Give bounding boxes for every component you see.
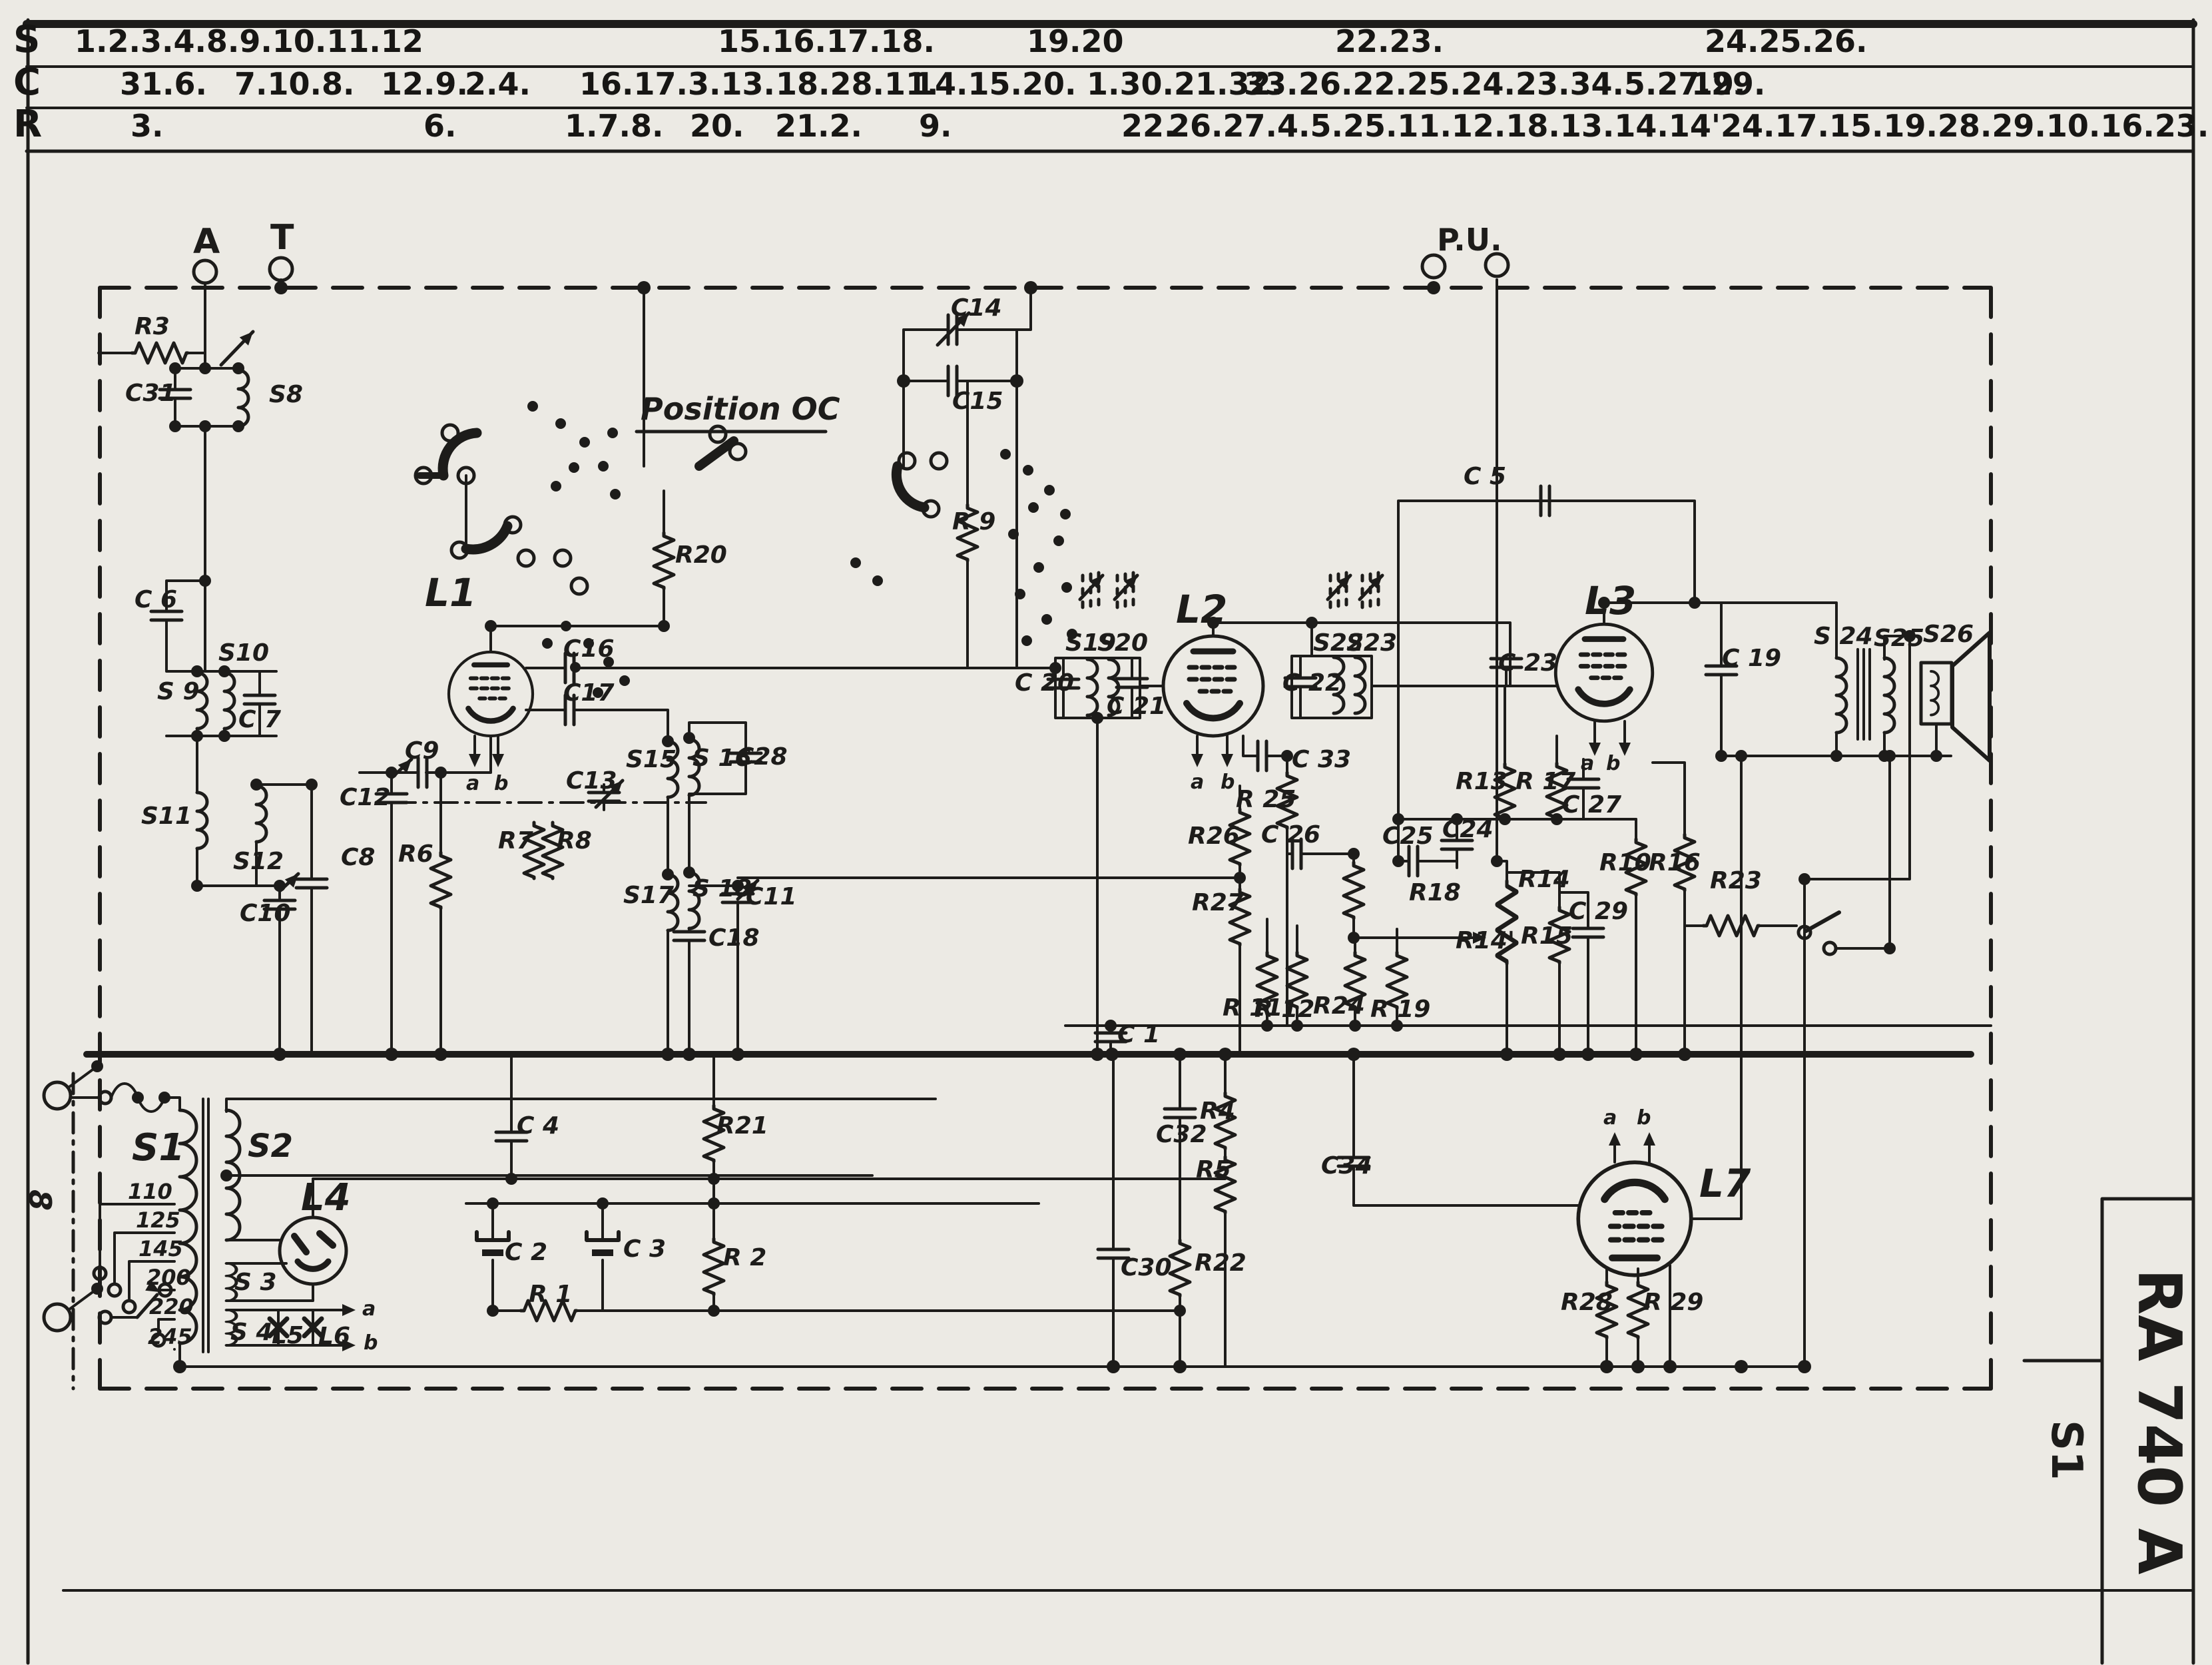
label-C12: C12 bbox=[340, 784, 391, 811]
label-pin-a1: a bbox=[466, 772, 479, 795]
label-C11: C11 bbox=[746, 883, 797, 910]
label-C6: C 6 bbox=[135, 586, 177, 613]
label-R20: R20 bbox=[675, 541, 727, 569]
label-S23: S23 bbox=[1346, 629, 1397, 657]
label-pin-b5: b bbox=[364, 1331, 378, 1355]
label-R23: R23 bbox=[1710, 867, 1762, 894]
header-row-S-group-4: 24.25.26. bbox=[1705, 23, 1867, 59]
schematic-sheet: S1.2.3.4.8.9.10.11.1215.16.17.18.19.2022… bbox=[0, 0, 2212, 1665]
label-L3: L3 bbox=[1585, 578, 1636, 623]
header-row-R-group-5: 9. bbox=[919, 108, 952, 144]
label-fuse-8: 8 bbox=[22, 1189, 58, 1211]
label-C8: C8 bbox=[341, 844, 375, 871]
header-row-letter-S: S bbox=[13, 18, 40, 61]
label-C32: C32 bbox=[1156, 1121, 1207, 1148]
header-row-S-group-0: 1.2.3.4.8.9.10.11.12 bbox=[75, 23, 423, 59]
label-pin-b1: b bbox=[494, 772, 508, 795]
header-row-C-group-6: 14.15. bbox=[914, 66, 1022, 102]
label-L5: L5 bbox=[272, 1322, 304, 1349]
label-S4: S 4 bbox=[230, 1319, 273, 1346]
header-row-letter-C: C bbox=[13, 61, 41, 104]
label-C2: C 2 bbox=[505, 1239, 547, 1266]
label-C16: C16 bbox=[563, 635, 615, 663]
label-S3: S 3 bbox=[234, 1269, 277, 1296]
label-pin-a5: a bbox=[362, 1297, 376, 1321]
header-row-R-group-7: 26.27.4.5.25.11.12.18.13.14.14'24.17.15.… bbox=[1169, 108, 2209, 144]
label-C29: C 29 bbox=[1569, 898, 1628, 925]
label-C15: C15 bbox=[952, 388, 1003, 415]
label-R6: R6 bbox=[398, 840, 433, 868]
label-S20: S20 bbox=[1097, 629, 1148, 657]
label-C20: C 20 bbox=[1015, 669, 1074, 697]
label-S2: S2 bbox=[248, 1128, 293, 1165]
label-R3: R3 bbox=[135, 313, 170, 340]
header-row-R-group-1: 6. bbox=[423, 108, 456, 144]
label-L4: L4 bbox=[301, 1176, 351, 1219]
label-C34: C34 bbox=[1321, 1152, 1372, 1179]
label-R2: R 2 bbox=[723, 1244, 766, 1271]
label-C24: C24 bbox=[1442, 816, 1494, 843]
label-R26: R26 bbox=[1188, 823, 1240, 850]
label-C1: C 1 bbox=[1117, 1021, 1160, 1048]
label-title-model: RA 740 A bbox=[2124, 1269, 2194, 1574]
label-C21: C 21 bbox=[1107, 693, 1166, 720]
label-S8: S8 bbox=[269, 381, 303, 408]
label-R10: R10 bbox=[1599, 849, 1651, 876]
label-terminal-pu: P.U. bbox=[1437, 222, 1502, 258]
label-terminal-a: A bbox=[193, 222, 220, 262]
label-pin-a3: a bbox=[1581, 752, 1594, 775]
header-row-letter-R: R bbox=[13, 103, 42, 146]
label-title-sheet: S1 bbox=[2042, 1420, 2091, 1481]
label-tap-145: 145 bbox=[138, 1236, 183, 1261]
label-R22: R22 bbox=[1195, 1249, 1246, 1277]
label-C9: C9 bbox=[405, 737, 439, 765]
label-C10: C10 bbox=[240, 900, 291, 927]
label-C17: C17 bbox=[563, 679, 615, 707]
label-S24: S 24 bbox=[1814, 623, 1873, 650]
label-tap-220: 220 bbox=[149, 1294, 194, 1319]
label-C27: C 27 bbox=[1562, 791, 1621, 819]
label-L7: L7 bbox=[1699, 1161, 1751, 1206]
label-R4: R4 bbox=[1200, 1098, 1235, 1125]
label-C30: C30 bbox=[1121, 1254, 1172, 1281]
label-tap-200: 200 bbox=[146, 1265, 191, 1290]
label-C14: C14 bbox=[951, 294, 1002, 322]
label-C5: C 5 bbox=[1464, 463, 1506, 490]
label-C13: C13 bbox=[566, 767, 617, 795]
label-tap-110: 110 bbox=[128, 1179, 172, 1204]
header-row-C-group-4: 16.17.3.13. bbox=[579, 66, 775, 102]
header-row-S-group-1: 15.16.17.18. bbox=[718, 23, 935, 59]
label-C28: C28 bbox=[736, 743, 788, 771]
label-pin-b3: b bbox=[1606, 752, 1620, 775]
label-R27: R27 bbox=[1192, 889, 1244, 916]
header-row-C-group-0: 31.6. bbox=[120, 66, 207, 102]
paper-background bbox=[0, 0, 2212, 1665]
header-row-R-group-2: 1.7.8. bbox=[565, 108, 663, 144]
label-R1: R 1 bbox=[529, 1281, 572, 1308]
label-S18: S 18 bbox=[692, 875, 752, 902]
label-pin-b4: b bbox=[1637, 1106, 1651, 1130]
label-pin-b2: b bbox=[1221, 771, 1235, 794]
header-row-R-group-0: 3. bbox=[131, 108, 163, 144]
label-S15: S15 bbox=[626, 746, 677, 773]
label-S17: S17 bbox=[623, 882, 674, 909]
label-R12: R 12 bbox=[1254, 996, 1314, 1023]
header-row-C-group-2: 12.9. bbox=[381, 66, 468, 102]
label-R24: R24 bbox=[1313, 992, 1365, 1020]
label-C18: C18 bbox=[708, 924, 760, 952]
label-R29: R 29 bbox=[1643, 1289, 1703, 1316]
label-R7: R7 bbox=[498, 827, 533, 854]
label-R28: R28 bbox=[1561, 1289, 1613, 1316]
label-R8: R8 bbox=[557, 827, 592, 854]
label-tap-125: 125 bbox=[136, 1207, 180, 1233]
label-S12: S12 bbox=[233, 848, 284, 875]
label-S25: S25 bbox=[1874, 625, 1924, 652]
header-row-R-group-6: 22. bbox=[1121, 108, 1176, 144]
label-S1: S1 bbox=[132, 1126, 184, 1169]
header-row-C-group-1: 7.10.8. bbox=[234, 66, 354, 102]
label-R9: R 9 bbox=[952, 508, 995, 535]
label-L1: L1 bbox=[425, 570, 476, 615]
label-S26: S26 bbox=[1923, 621, 1974, 648]
label-C3: C 3 bbox=[623, 1235, 666, 1263]
label-R19: R 19 bbox=[1370, 996, 1430, 1023]
label-C25: C25 bbox=[1382, 823, 1434, 850]
header-row-R-group-4: 21.2. bbox=[775, 108, 862, 144]
label-R15: R15 bbox=[1521, 922, 1573, 950]
label-position-oc: Position OC bbox=[641, 391, 840, 427]
label-S11: S11 bbox=[141, 803, 192, 830]
label-R16: R16 bbox=[1649, 849, 1701, 876]
header-row-R-group-3: 20. bbox=[690, 108, 744, 144]
label-tap-245: 245 bbox=[148, 1324, 192, 1349]
label-L2: L2 bbox=[1176, 587, 1227, 632]
label-L6: L6 bbox=[318, 1323, 350, 1350]
header-row-S-group-3: 22.23. bbox=[1335, 23, 1444, 59]
label-C7: C 7 bbox=[238, 706, 281, 733]
label-pin-a4: a bbox=[1603, 1106, 1617, 1130]
header-row-C-group-7: 20. bbox=[1022, 66, 1077, 102]
label-R13: R13 bbox=[1456, 768, 1508, 795]
label-C4: C 4 bbox=[517, 1112, 559, 1140]
label-C23: C 23 bbox=[1498, 649, 1557, 677]
label-R14: R14 bbox=[1518, 866, 1570, 893]
header-row-C-group-11: 19. bbox=[1691, 66, 1746, 102]
label-terminal-t: T bbox=[270, 218, 294, 258]
header-row-C-group-9: 33. bbox=[1244, 66, 1298, 102]
label-C22: C 22 bbox=[1282, 669, 1342, 697]
header-row-S-group-2: 19.20 bbox=[1027, 23, 1124, 59]
header-row-C-group-3: 2.4. bbox=[465, 66, 531, 102]
label-C26: C 26 bbox=[1261, 821, 1320, 848]
label-C33: C 33 bbox=[1292, 746, 1351, 773]
label-C31: C31 bbox=[125, 380, 176, 407]
label-C19: C 19 bbox=[1722, 645, 1781, 672]
label-S10: S10 bbox=[218, 639, 269, 667]
label-R18: R18 bbox=[1409, 879, 1461, 906]
label-R25: R 25 bbox=[1236, 786, 1296, 813]
label-R5: R5 bbox=[1196, 1156, 1231, 1183]
schematic-canvas: S1.2.3.4.8.9.10.11.1215.16.17.18.19.2022… bbox=[0, 0, 2212, 1665]
label-R14p: R14' bbox=[1456, 927, 1515, 954]
label-R21: R21 bbox=[716, 1112, 768, 1140]
label-pin-a2: a bbox=[1191, 771, 1204, 794]
label-S9: S 9 bbox=[157, 678, 200, 705]
